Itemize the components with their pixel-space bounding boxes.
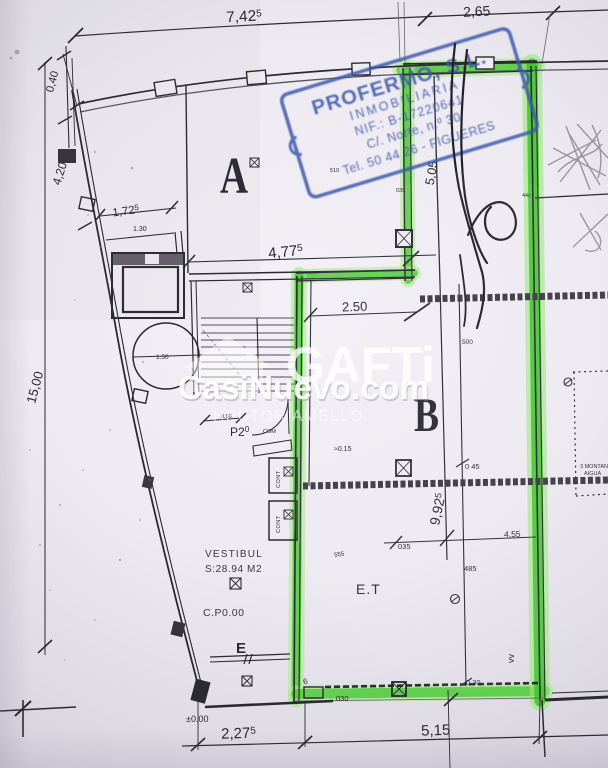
svg-text:COM: COM bbox=[263, 429, 276, 435]
svg-text:CONT: CONT bbox=[276, 470, 282, 488]
svg-text:VESTIBUL: VESTIBUL bbox=[205, 549, 263, 560]
svg-text:P20: P20 bbox=[230, 425, 250, 439]
svg-text:1.50: 1.50 bbox=[156, 354, 169, 361]
svg-text:±0.00: ±0.00 bbox=[186, 714, 208, 724]
svg-text:2,65: 2,65 bbox=[463, 2, 491, 19]
svg-text:E: E bbox=[236, 640, 246, 657]
svg-text:510: 510 bbox=[330, 168, 339, 174]
svg-text:C.P0.00: C.P0.00 bbox=[203, 607, 244, 619]
svg-text:CONT: CONT bbox=[276, 515, 282, 533]
svg-text:6: 6 bbox=[302, 677, 309, 687]
svg-text:S:28.94 M2: S:28.94 M2 bbox=[205, 564, 262, 575]
svg-text:030: 030 bbox=[336, 694, 349, 703]
